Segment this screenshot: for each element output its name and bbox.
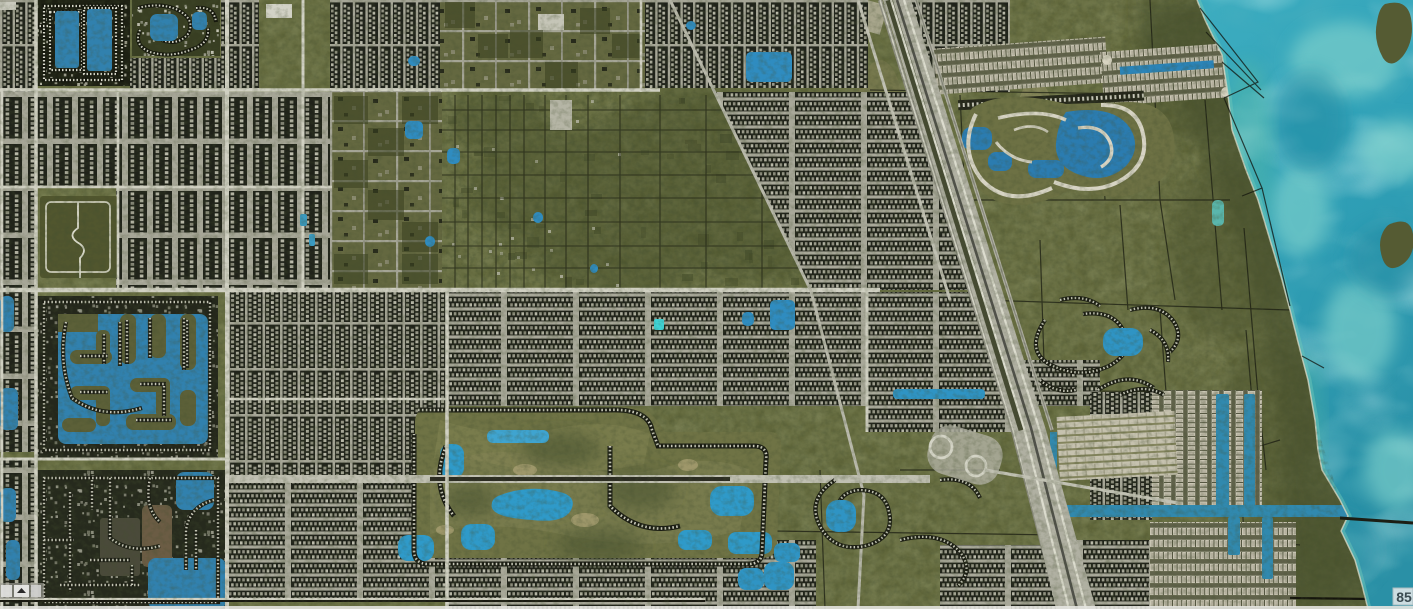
svg-text:85: 85 — [1396, 589, 1412, 605]
